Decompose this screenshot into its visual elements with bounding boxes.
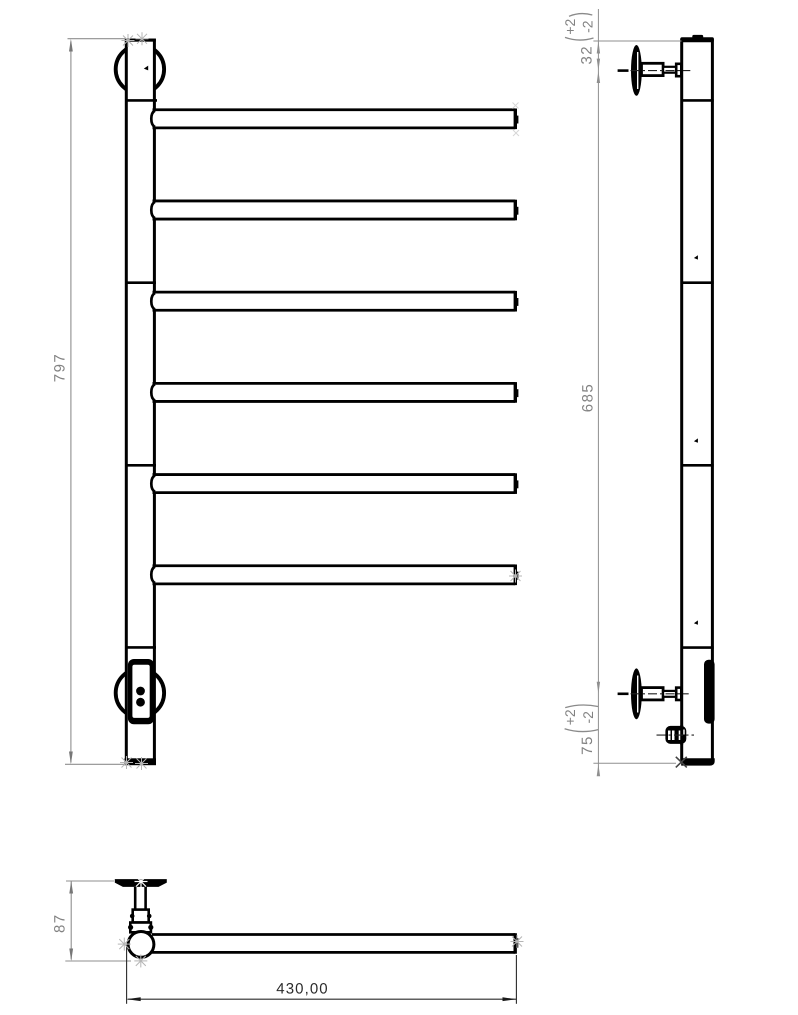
svg-text:-2: -2 [580, 20, 596, 33]
svg-text:685: 685 [579, 383, 596, 413]
svg-text:-2: -2 [580, 711, 596, 724]
svg-text:75: 75 [579, 735, 596, 755]
svg-text:797: 797 [52, 353, 69, 383]
svg-text:+2: +2 [562, 19, 578, 35]
svg-text:87: 87 [51, 913, 68, 933]
svg-text:32: 32 [579, 45, 596, 65]
svg-text:+2: +2 [562, 709, 578, 725]
svg-text:430,00: 430,00 [276, 981, 328, 998]
